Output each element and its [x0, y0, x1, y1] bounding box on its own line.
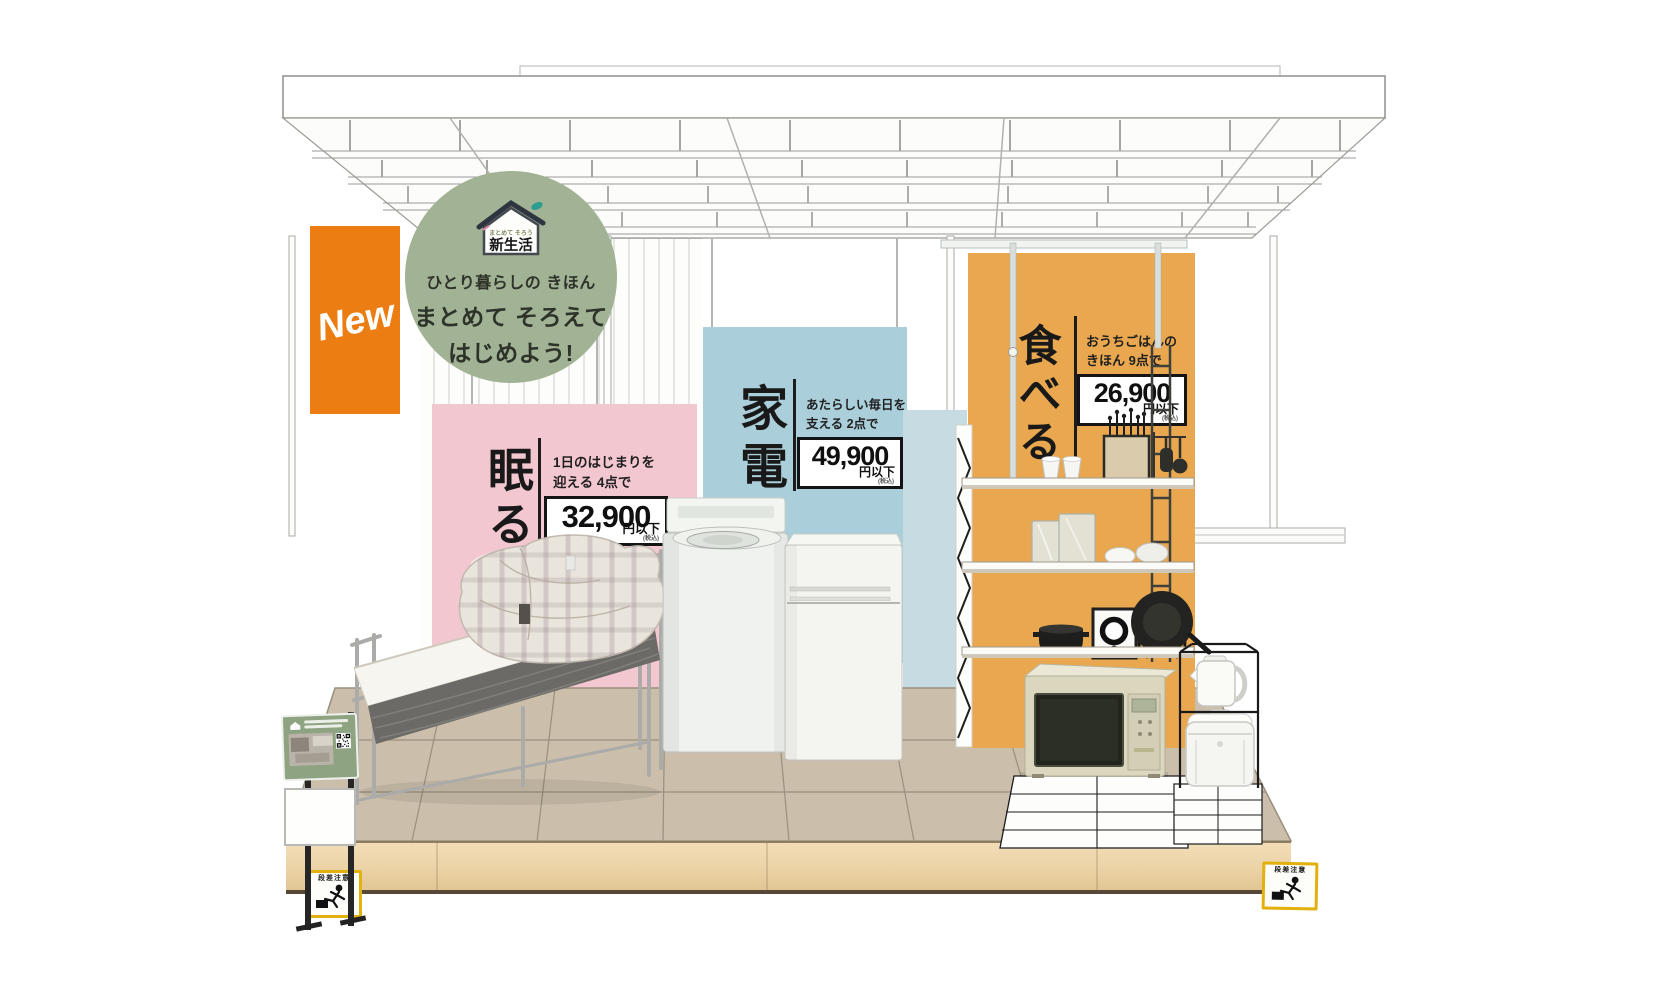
leaf-icon [530, 200, 544, 211]
caution-sign-right: 段差注意 [1262, 862, 1319, 911]
bowls [1105, 543, 1168, 565]
shelf-board [962, 562, 1194, 573]
washing-machine [660, 495, 792, 757]
info-placard [281, 713, 359, 782]
placard-caption-line [304, 724, 342, 728]
blank-sign [284, 788, 356, 846]
badge-tagline: ひとり暮らしの きほん [405, 269, 617, 293]
appliances-divider [793, 379, 796, 491]
rice-cooker [1186, 710, 1254, 786]
fridge-handle [790, 587, 890, 591]
room-photo [289, 733, 334, 767]
new-banner: New [310, 226, 400, 414]
electric-kettle [1190, 656, 1245, 706]
appliances-price-unit: 円以下 [859, 466, 895, 478]
storage-containers [1032, 514, 1095, 563]
trip-hazard-icon [1268, 875, 1312, 902]
campaign-badge: まとめて そろう 新生活 ひとり暮らしの きほん まとめて そろえて はじめよう… [405, 171, 617, 383]
shelf-board [962, 478, 1194, 489]
storage-boxes-left [1000, 776, 1188, 848]
appliances-desc-2: 支える 2点で [806, 415, 879, 433]
storage-boxes-right [1174, 784, 1262, 844]
price-box-appliances: 49,900 円以下 (税込) [797, 437, 903, 489]
glass-cups [1042, 457, 1081, 481]
utensil-stand [1104, 408, 1149, 480]
tension-pole-left [1010, 243, 1016, 480]
refrigerator [782, 530, 906, 763]
sign-foot [296, 921, 322, 931]
sleep-desc-1: 1日のはじまりを [553, 453, 655, 473]
mini-house-icon [289, 721, 301, 731]
placard-caption-line [304, 719, 348, 724]
store-display-render: 眠る 1日のはじまりを 迎える 4点で 32,900 円以下 (税込) 家電 あ… [0, 0, 1654, 1007]
badge-headline-1: まとめて そろえて [405, 298, 617, 332]
badge-headline-2: はじめよう! [405, 334, 617, 368]
sleep-desc-2: 迎える 4点で [553, 473, 631, 493]
microwave [1025, 664, 1176, 778]
bed [330, 520, 675, 820]
badge-logo-small-text: まとめて そろう [489, 229, 533, 237]
qr-code-icon [335, 732, 351, 750]
kitchen-foreground [995, 640, 1275, 855]
appliances-desc-1: あたらしい毎日を [806, 396, 906, 414]
badge-logo-main-text: 新生活 [489, 236, 533, 254]
tension-pole-right [1155, 243, 1161, 348]
badge-house-logo: まとめて そろう 新生活 [473, 197, 549, 261]
duvet-tag [519, 604, 530, 624]
new-banner-label: New [312, 292, 399, 351]
canopy-fascia [283, 76, 1385, 118]
appliances-price-tax: (税込) [878, 479, 894, 485]
appliances-heading: 家電 [734, 383, 782, 499]
